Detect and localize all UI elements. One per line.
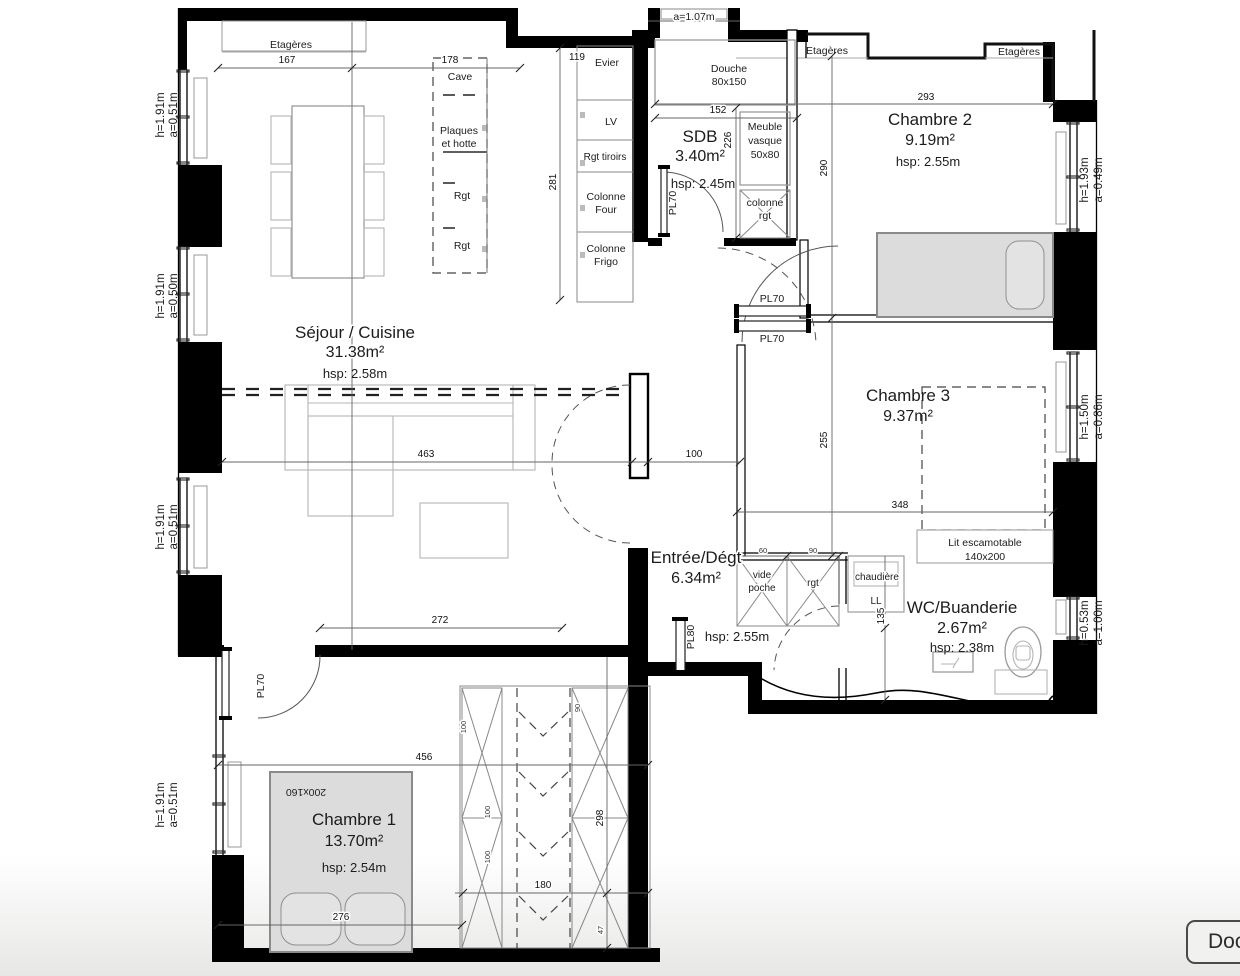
room-wc-hsp: hsp: 2.38m [930, 640, 994, 655]
win-l1-h: h=1.91m [155, 92, 167, 137]
dim-100b: 100 [483, 806, 492, 819]
colonne-rgt-label1: colonne [747, 197, 784, 209]
coffee-table [420, 503, 508, 558]
room-chambre1-name: Chambre 1 [312, 810, 396, 829]
dim-100a: 100 [459, 721, 468, 734]
win-l3-h: h=1.91m [155, 504, 167, 549]
rgt-b-label: Rgt [454, 240, 470, 252]
room-sdb-area: 3.40m² [675, 148, 725, 165]
bed-chambre2 [877, 233, 1053, 317]
pl70-bottom-label: PL70 [760, 333, 785, 345]
dim-100c: 100 [483, 851, 492, 864]
room-wc-area: 2.67m² [937, 620, 987, 637]
dim-293: 293 [918, 92, 935, 103]
vide-label: vide [753, 570, 772, 581]
room-entree-area: 6.34m² [671, 570, 721, 587]
win-r2-h: h=1.50m [1079, 394, 1091, 439]
dim-90: 90 [809, 546, 817, 555]
lit-size-label: 140x200 [965, 551, 1005, 563]
etageres-right-label: Etagères [998, 46, 1040, 58]
room-chambre2-area: 9.19m² [905, 132, 955, 149]
wc-counter [995, 670, 1047, 694]
dim-47: 47 [596, 926, 605, 934]
win-l4-a: a=0.51m [168, 782, 180, 827]
window-right-1 [1056, 122, 1079, 232]
dim-167: 167 [279, 55, 296, 66]
room-chambre1-area: 13.70m² [325, 833, 384, 850]
room-wc-name: WC/Buanderie [907, 598, 1018, 617]
dim-272: 272 [432, 615, 449, 626]
dim-456: 456 [416, 752, 433, 763]
chaudiere-label: chaudière [855, 572, 899, 583]
lv-label: LV [605, 116, 617, 128]
hand-basin [933, 652, 973, 672]
dim-178: 178 [442, 55, 459, 66]
window-left-1 [177, 70, 207, 165]
dim-276: 276 [333, 912, 350, 923]
fold-bed-outline [922, 387, 1045, 530]
win-l2-a: a=0.50m [168, 273, 180, 318]
pl70-sdb-label: PL70 [667, 191, 679, 216]
room-sdb-name: SDB [683, 127, 718, 146]
dim-60: 60 [759, 546, 767, 555]
win-r1-h: h=1.93m [1079, 157, 1091, 202]
window-left-3 [177, 478, 207, 575]
win-r1-a: a=0.49m [1093, 157, 1105, 202]
entrance-door-label: a=1.07m [673, 11, 714, 23]
room-sejour-name: Séjour / Cuisine [295, 323, 415, 342]
pl80-label: PL80 [685, 625, 697, 650]
placard-pl70-chambre1 [219, 647, 232, 720]
room-chambre2-name: Chambre 2 [888, 110, 972, 129]
dim-255: 255 [819, 431, 830, 448]
dim-119: 119 [569, 52, 585, 63]
dim-281: 281 [548, 173, 559, 190]
lit-escamotable-label: Lit escamotable [948, 537, 1022, 549]
room-sdb-hsp: hsp: 2.45m [671, 176, 735, 191]
room-chambre3-area: 9.37m² [883, 408, 933, 425]
meuble-label: Meuble [748, 121, 783, 133]
window-right-2 [1056, 352, 1079, 462]
rgt-box [787, 556, 839, 626]
cave-label: Cave [448, 71, 473, 83]
window-left-4 [213, 755, 241, 855]
pl70-chambre1-label: PL70 [255, 674, 267, 699]
room-sejour-area: 31.38m² [326, 344, 385, 361]
colonne-frigo-label2: Frigo [594, 256, 618, 268]
dining-table [292, 106, 364, 278]
win-r3-h: h=0.53m [1079, 600, 1091, 645]
vasque-size-label: 50x80 [751, 149, 780, 161]
pl70-top-label: PL70 [760, 293, 785, 305]
room-entree-hsp: hsp: 2.55m [705, 629, 769, 644]
colonne-frigo-label1: Colonne [586, 243, 625, 255]
dim-180: 180 [535, 880, 552, 891]
rgt-tiroirs-label: Rgt tiroirs [584, 152, 627, 163]
placard-pl70-hall-top [734, 304, 811, 318]
room-chambre2-hsp: hsp: 2.55m [896, 154, 960, 169]
dim-226: 226 [723, 131, 734, 148]
dim-135: 135 [876, 607, 887, 624]
vasque-label: vasque [748, 135, 782, 147]
rgt-a-label: Rgt [454, 190, 470, 202]
dim-298: 298 [595, 809, 606, 826]
window-left-2 [177, 247, 207, 342]
dim-290: 290 [819, 159, 830, 176]
douche-size-label: 80x150 [712, 76, 747, 88]
evier-label: Evier [595, 57, 619, 69]
document-button-label: Docu [1208, 930, 1240, 954]
etageres-left-label: Etagères [270, 39, 312, 51]
bed1-size-label: 200x160 [286, 786, 326, 798]
sofa [285, 385, 535, 516]
et-hotte-label: et hotte [441, 138, 476, 150]
colonne-rgt-label2: rgt [759, 210, 771, 222]
win-r3-a: a=1.00m [1093, 600, 1105, 645]
room-entree-name: Entrée/Dégt [651, 548, 742, 567]
room-sejour-hsp: hsp: 2.58m [323, 366, 387, 381]
win-r2-a: a=0.86m [1093, 394, 1105, 439]
rgt-hall-label: rgt [807, 578, 819, 589]
floor-plan-page: Séjour / Cuisine 31.38m² hsp: 2.58m SDB … [0, 0, 1240, 976]
win-l1-a: a=0.51m [168, 92, 180, 137]
dim-463: 463 [418, 449, 435, 460]
plaques-label: Plaques [440, 125, 478, 137]
room-chambre3-name: Chambre 3 [866, 386, 950, 405]
etageres-mid-label: Etagères [806, 45, 848, 57]
floor-plan-drawing: Séjour / Cuisine 31.38m² hsp: 2.58m SDB … [0, 0, 1240, 976]
poche-label: poche [748, 583, 776, 594]
win-l2-h: h=1.91m [155, 273, 167, 318]
dim-90b: 90 [573, 704, 582, 712]
ll-label: LL [870, 596, 882, 607]
window-right-3 [1056, 597, 1079, 640]
document-button[interactable]: Docu [1186, 920, 1240, 964]
colonne-four-label1: Colonne [586, 191, 625, 203]
placard-pl70-hall-bottom [734, 319, 811, 333]
room-chambre1-hsp: hsp: 2.54m [322, 860, 386, 875]
colonne-four-label2: Four [595, 204, 617, 216]
win-l3-a: a=0.51m [168, 504, 180, 549]
dim-152: 152 [710, 105, 727, 116]
win-l4-h: h=1.91m [155, 782, 167, 827]
dim-348: 348 [892, 500, 909, 511]
douche-label: Douche [711, 63, 747, 75]
dim-100: 100 [686, 449, 703, 460]
